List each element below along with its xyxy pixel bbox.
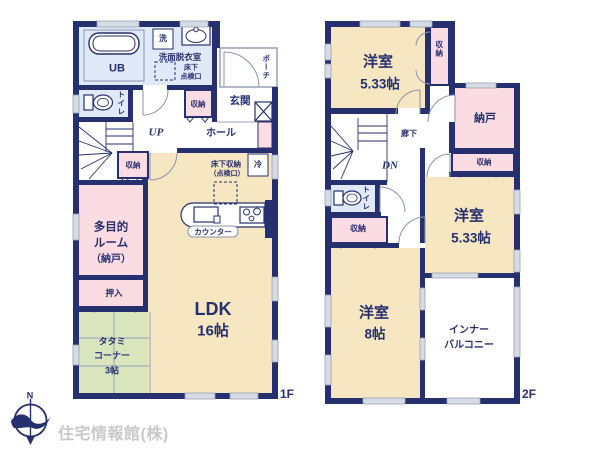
balcony-label-line1: インナー <box>449 326 489 336</box>
room-c-size-label: 8帖 <box>364 327 385 341</box>
ub-label: UB <box>109 64 125 75</box>
nando-label: 納戸 <box>474 114 496 125</box>
room-b-label: 洋室 <box>454 209 484 224</box>
counter-label: カウンター <box>194 228 232 236</box>
tatami-label-line1: タタミ <box>98 338 125 347</box>
stairs-up-label: UP <box>149 128 164 139</box>
underfloor-storage-label-line2: （点検口） <box>210 171 245 178</box>
stairs-down-label: DN <box>382 161 398 172</box>
room-b-size-label: 5.33帖 <box>451 231 491 245</box>
hall2-storage-label: 収納 <box>350 225 366 233</box>
sink-icon <box>182 26 210 45</box>
shoe-cabinet <box>258 122 272 148</box>
compass-north-label: N <box>27 392 34 401</box>
fridge-label: 冷 <box>254 161 262 169</box>
stove-icon <box>240 207 264 223</box>
hatch-label-line1: 床下 <box>184 65 198 72</box>
room-a-label: 洋室 <box>363 55 393 70</box>
washroom-label: 洗面脱衣室 <box>159 53 202 62</box>
porch-label: ポーチ <box>262 54 270 80</box>
multi-room-label-line3: （納戸） <box>91 255 131 265</box>
toilet1f-label: トイレ <box>117 90 125 116</box>
ldk-label: LDK <box>195 300 232 318</box>
multi-room-label-line2: ルーム <box>94 238 128 250</box>
room-c-label: 洋室 <box>359 306 389 321</box>
floorplan-canvas: 洗 洗面脱衣室 床下 点検口 UB トイレ ポーチ 玄関 収納 ホール UP 収… <box>0 0 600 450</box>
toilet-icon-1f <box>84 95 113 110</box>
room-b-storage-label: 収納 <box>477 158 492 166</box>
tatami-size-label: 3帖 <box>105 367 119 376</box>
entrance-label: 玄関 <box>230 96 251 107</box>
room-a-size-label: 5.33帖 <box>360 77 400 91</box>
toilet2f-label: トイレ <box>362 185 370 211</box>
multi-room-label-line1: 多目的 <box>94 222 129 234</box>
floor2-label: 2F <box>522 388 536 400</box>
hall-label: ホール <box>206 129 236 139</box>
tatami-label-line2: コーナー <box>94 352 130 361</box>
washer-label: 洗 <box>159 35 167 43</box>
hall-storage-label: 収納 <box>191 100 206 108</box>
floorplan-drawing <box>0 0 600 450</box>
oshiire-label: 押入 <box>105 289 122 298</box>
stairs-down <box>331 114 387 182</box>
balcony-label-line2: バルコニー <box>444 341 494 351</box>
toilet-icon-2f <box>334 191 361 205</box>
entrance-post-box <box>255 102 272 121</box>
stair-storage-label: 収納 <box>126 161 141 169</box>
watermark-text: 住宅情報館(株) <box>58 420 169 444</box>
ldk-size-label: 16帖 <box>197 324 229 339</box>
corridor-label: 廊下 <box>401 130 417 138</box>
compass-icon <box>11 399 50 445</box>
hatch-label-line2: 点検口 <box>181 74 202 81</box>
room-a-storage-label: 収納 <box>435 41 443 58</box>
floor1-label: 1F <box>280 388 294 400</box>
underfloor-storage-label-line1: 床下収納 <box>211 160 241 168</box>
